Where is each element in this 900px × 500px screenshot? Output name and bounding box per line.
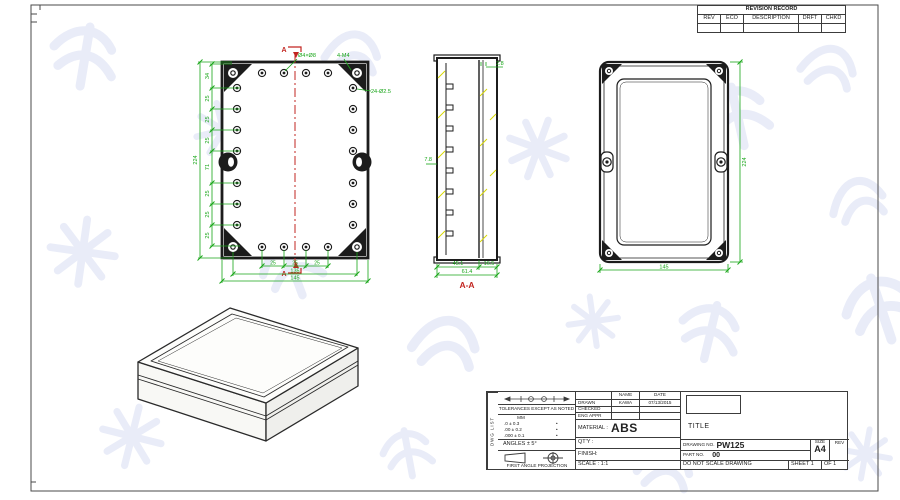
section-label: A-A (459, 280, 474, 290)
title-block-side-label: DWG LIST (487, 392, 498, 469)
date-header: DATE (640, 392, 681, 400)
dim-label: 135 (290, 269, 299, 275)
rev-cell: REV (830, 440, 849, 461)
dim-label: 25 (205, 190, 211, 196)
revision-record-table: REVISION RECORD REV ECO DESCRIPTION DRFT… (697, 5, 846, 33)
size-value: A4 (811, 445, 829, 454)
projection-cell: FIRST ANGLE PROJECTION (498, 451, 576, 469)
part-no-value: 00 (712, 452, 720, 459)
drawn-date: 07/13/2015 (640, 400, 681, 407)
eng-appr-date (640, 413, 681, 420)
revision-col-chkd: CHKD (822, 15, 845, 24)
dim-label: 34 (205, 73, 211, 79)
dim-label: 25 (292, 261, 298, 267)
dim-label: 61.4 (462, 269, 473, 275)
dim-label: 71 (205, 164, 211, 170)
drawing-no-value: PW125 (716, 441, 744, 450)
drawn-name: KAWA (612, 400, 640, 407)
revision-empty-row (822, 24, 845, 32)
revision-col-eco: ECO (721, 15, 744, 24)
tolerance-mark: • (556, 434, 558, 439)
dim-label: 25 (205, 211, 211, 217)
tolerances-heading: TOLERANCES EXCEPT AS NOTED (498, 405, 576, 415)
dim-label: 2.8 (496, 61, 504, 67)
tolerance-table: MM .0 ± 0.3 .00 ± 0.2 .000 ± 0.1 • • • (498, 415, 576, 440)
tolerance-row: .000 ± 0.1 (504, 434, 524, 439)
drawing-no-label: DRAWING NO. (683, 443, 714, 448)
angles-tolerance: ANGLES ± 5° (498, 440, 576, 451)
section-letter-bottom: A (281, 271, 286, 278)
material-label: MATERIAL : (578, 426, 608, 432)
revision-empty-row (721, 24, 744, 32)
dim-label: 25 (270, 261, 276, 267)
material-value: ABS (611, 422, 638, 435)
dim-label: 7.8 (424, 157, 432, 163)
qty-row: QT'Y : (576, 438, 681, 449)
dim-label: 25 (205, 232, 211, 238)
title-cell: TITLE (681, 392, 849, 440)
revision-empty-row (799, 24, 822, 32)
dim-label: 25 (205, 95, 211, 101)
title-block: DWG LIST TOLERANCES EXCEPT AS NOTED MM .… (486, 391, 848, 470)
dim-label: 25 (314, 261, 320, 267)
dim-label: 25 (205, 116, 211, 122)
leader-label: Ø4×Ø8 (298, 53, 316, 59)
dim-label: 25 (205, 137, 211, 143)
part-no-cell: PART NO. 00 (681, 451, 811, 461)
name-header: NAME (612, 392, 640, 400)
approvals-blank (576, 392, 612, 400)
revision-col-drft: DRFT (799, 15, 822, 24)
dim-label: 16.5 (484, 261, 495, 267)
sheet-cell: SHEET 1 (789, 461, 822, 469)
do-not-scale-cell: DO NOT SCALE DRAWING (681, 461, 789, 469)
logo-box (686, 395, 741, 414)
eng-appr-label: ENG APPR (576, 413, 612, 420)
dim-label: 224 (742, 157, 748, 166)
projection-label: FIRST ANGLE PROJECTION (498, 464, 576, 469)
finish-row: FINISH: (576, 449, 681, 461)
leader-label: 24-Ø2.5 (371, 89, 391, 95)
drawing-no-cell: DRAWING NO. PW125 (681, 440, 811, 451)
material-row: MATERIAL : ABS (576, 420, 681, 438)
revision-col-description: DESCRIPTION (744, 15, 799, 24)
revision-title: REVISION RECORD (698, 6, 845, 15)
scale-row: SCALE : 1:1 (576, 461, 681, 469)
dimension-symbol-icon (501, 393, 573, 404)
of-cell: OF 1 (822, 461, 849, 469)
title-label: TITLE (688, 423, 710, 430)
revision-col-rev: REV (698, 15, 721, 24)
leader-label: 4-M4 (337, 53, 350, 59)
lid-view: 224 145 (598, 60, 749, 274)
size-cell: SIZE A4 (811, 440, 830, 461)
front-view: A A 34 25 25 (193, 47, 391, 284)
part-no-label: PART NO. (683, 453, 704, 458)
dimension-symbol-row (498, 392, 576, 405)
section-letter-top: A (281, 47, 286, 54)
dim-label: 145 (659, 265, 668, 271)
dim-label: 224 (193, 155, 199, 164)
dim-label: 145 (290, 276, 299, 282)
revision-empty-row (744, 24, 799, 32)
eng-appr-name (612, 413, 640, 420)
dim-label: 45.1 (453, 261, 464, 267)
drawn-label: DRAWN (576, 400, 612, 407)
isometric-view (138, 308, 358, 441)
section-view: 2.8 7.8 45.1 16.5 61.4 A-A (424, 55, 503, 290)
revision-empty-row (698, 24, 721, 32)
drawing-sheet: A A 34 25 25 (0, 0, 900, 500)
